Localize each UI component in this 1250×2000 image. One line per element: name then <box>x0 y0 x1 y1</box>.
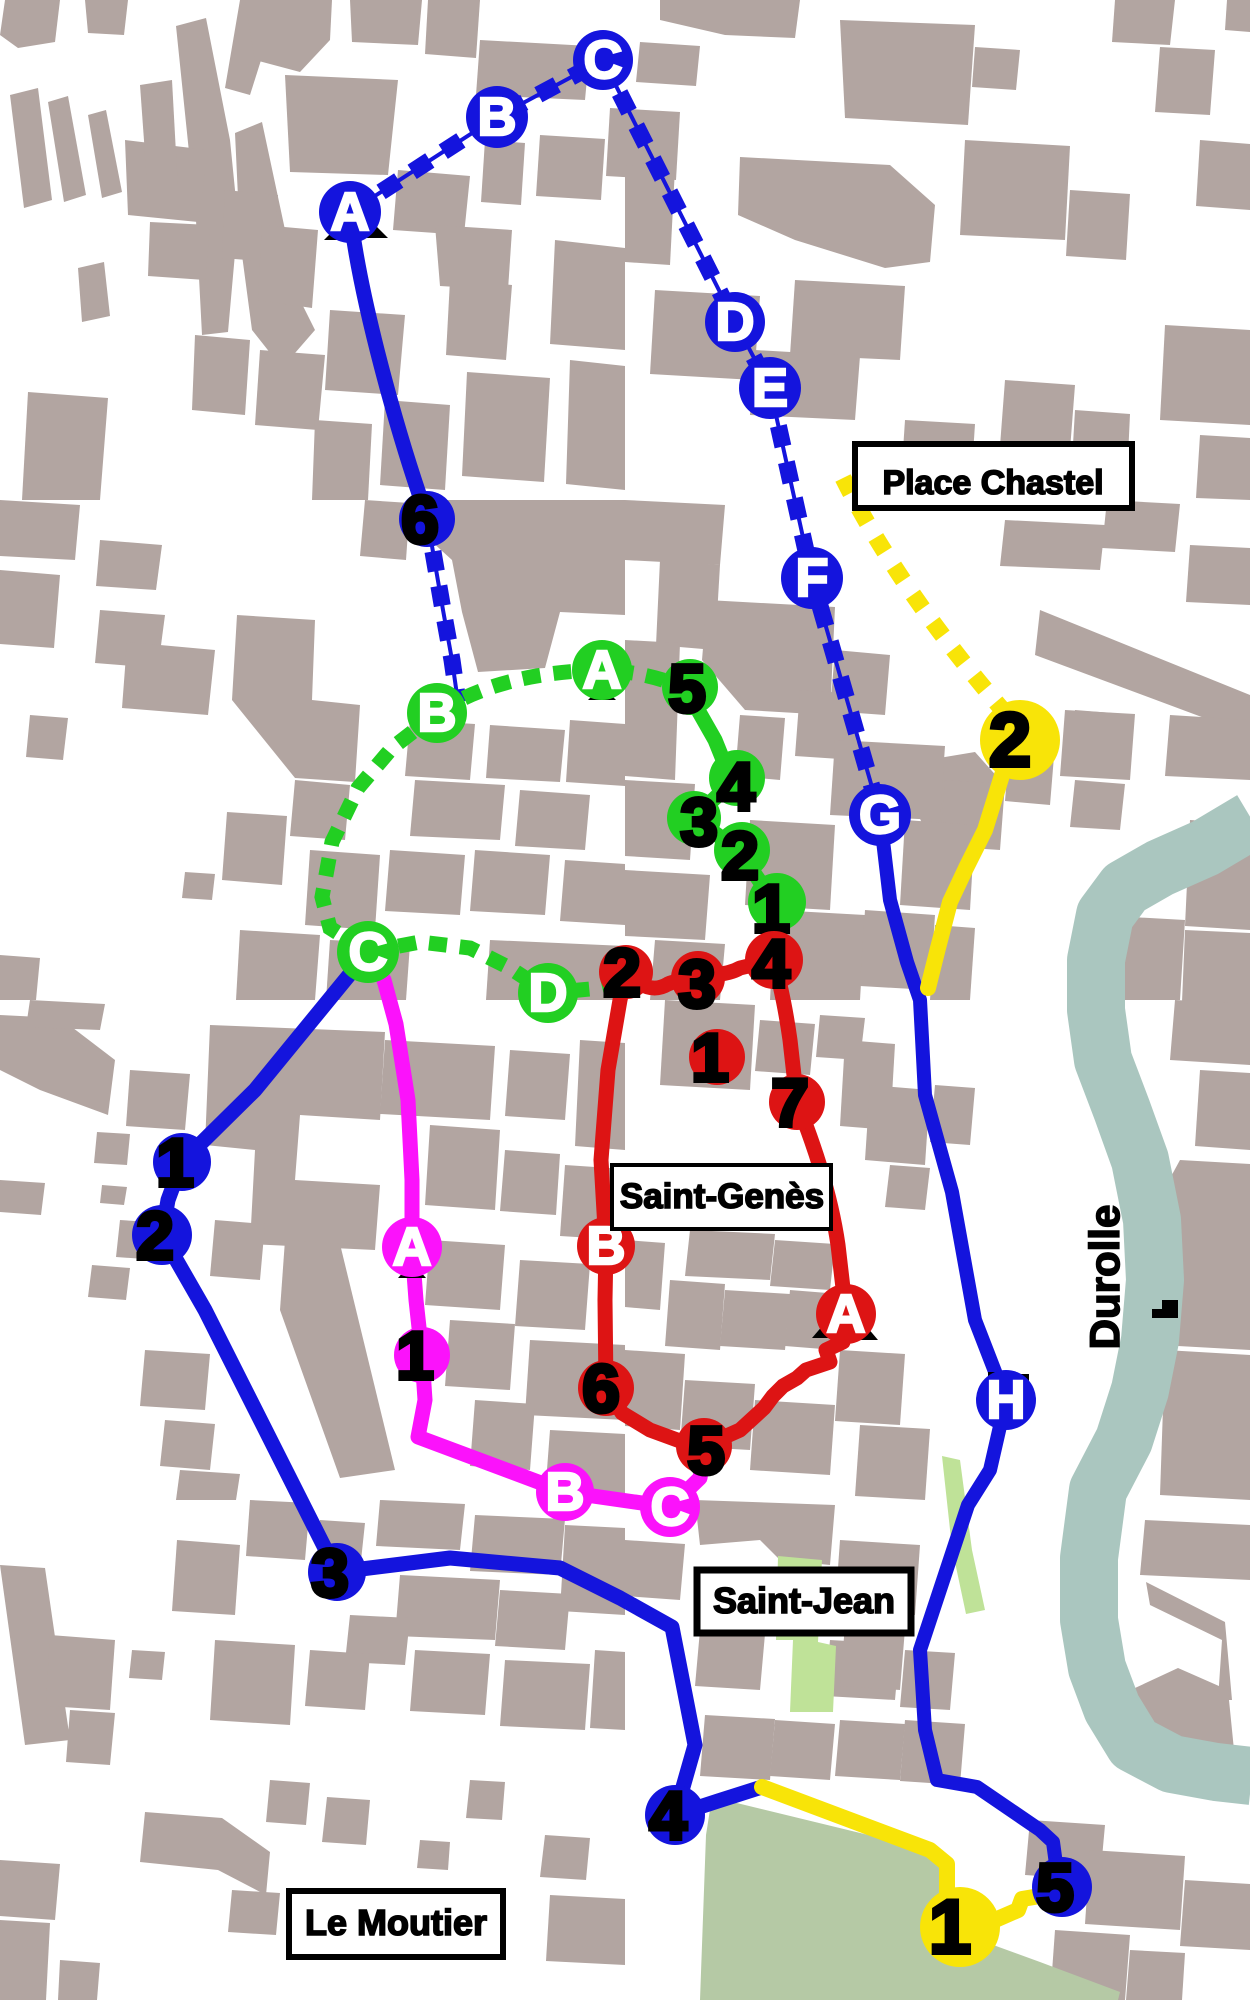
svg-text:Saint-Jean: Saint-Jean <box>713 1580 895 1621</box>
svg-text:6: 6 <box>582 1351 620 1427</box>
svg-text:5: 5 <box>1036 1850 1074 1926</box>
svg-text:1: 1 <box>396 1318 434 1394</box>
svg-text:1: 1 <box>156 1125 194 1201</box>
svg-text:C: C <box>584 30 623 90</box>
svg-text:D: D <box>529 963 568 1023</box>
svg-text:B: B <box>478 87 517 147</box>
svg-text:4: 4 <box>752 926 790 1002</box>
svg-text:5: 5 <box>668 651 706 727</box>
svg-text:B: B <box>546 1462 585 1522</box>
svg-text:5: 5 <box>687 1413 725 1489</box>
svg-text:3: 3 <box>680 784 718 860</box>
svg-text:7: 7 <box>771 1065 809 1141</box>
svg-text:Place Chastel: Place Chastel <box>882 464 1103 502</box>
svg-text:2: 2 <box>136 1198 174 1274</box>
svg-text:1: 1 <box>691 1020 729 1096</box>
svg-text:B: B <box>418 683 457 743</box>
svg-text:Durolle: Durolle <box>1081 1205 1128 1350</box>
svg-text:A: A <box>393 1217 432 1277</box>
svg-text:A: A <box>827 1284 866 1344</box>
svg-text:D: D <box>716 292 755 352</box>
svg-text:C: C <box>651 1477 690 1537</box>
svg-text:2: 2 <box>603 935 641 1011</box>
svg-text:E: E <box>752 358 788 418</box>
svg-text:H: H <box>987 1370 1026 1430</box>
svg-text:A: A <box>331 182 370 242</box>
svg-text:Saint-Genès: Saint-Genès <box>620 1177 824 1216</box>
svg-text:A: A <box>583 640 622 700</box>
svg-text:Le Moutier: Le Moutier <box>305 1902 487 1943</box>
svg-text:3: 3 <box>311 1535 349 1611</box>
svg-text:G: G <box>859 785 901 845</box>
svg-text:6: 6 <box>401 482 439 558</box>
svg-text:1: 1 <box>929 1885 971 1970</box>
svg-text:4: 4 <box>717 749 755 825</box>
svg-text:3: 3 <box>678 946 716 1022</box>
svg-text:F: F <box>796 548 829 608</box>
svg-text:2: 2 <box>989 698 1031 783</box>
svg-text:4: 4 <box>649 1778 687 1854</box>
svg-text:C: C <box>349 922 388 982</box>
